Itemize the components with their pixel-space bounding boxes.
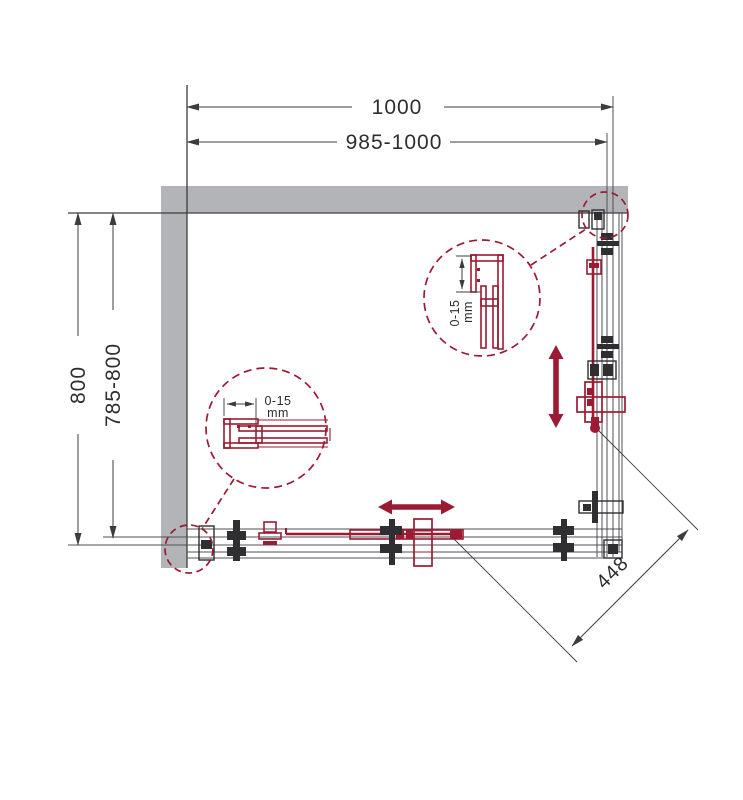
dim-width-total-label: 1000 xyxy=(372,96,423,119)
rail-right xyxy=(597,96,622,558)
dim-width-range: 985-1000 xyxy=(187,131,607,154)
wall-top xyxy=(161,186,628,213)
dim-width-range-label: 985-1000 xyxy=(346,131,443,154)
dim-depth-total-label: 800 xyxy=(67,366,90,404)
dim-entry-diagonal: 448 xyxy=(452,430,698,662)
detail-dim-top-right-unit: mm xyxy=(461,301,475,323)
technical-drawing: 1000 985-1000 800 785-800 xyxy=(0,0,743,800)
door-bottom xyxy=(259,519,463,566)
wall-left xyxy=(161,186,187,568)
detail-dim-top-right-range: 0-15 xyxy=(448,299,462,326)
dim-width-total: 1000 xyxy=(187,96,613,119)
slide-direction-horizontal-icon xyxy=(378,500,455,515)
detail-callout-bottom-left: 0-15 mm xyxy=(165,368,330,573)
detail-dim-bottom-left-unit: mm xyxy=(267,406,289,420)
dim-depth-total: 800 xyxy=(67,213,90,545)
wall-face-lines xyxy=(68,85,628,568)
dim-depth-range: 785-800 xyxy=(102,213,125,538)
hardware-right xyxy=(579,210,623,523)
slide-direction-vertical-icon xyxy=(549,345,564,428)
dim-depth-range-label: 785-800 xyxy=(102,343,125,427)
